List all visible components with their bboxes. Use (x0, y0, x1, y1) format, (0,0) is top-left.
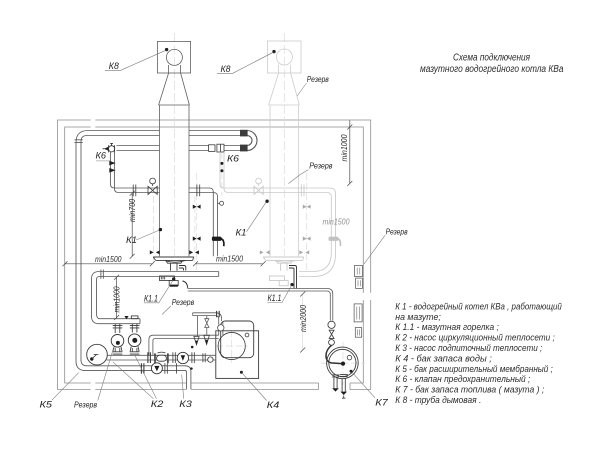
svg-text:К 1 - водогрейный котел КВа ,: К 1 - водогрейный котел КВа , работающий (395, 301, 562, 312)
svg-text:min1500: min1500 (95, 254, 122, 264)
svg-text:К 3 - насос подпиточный тепло: К 3 - насос подпиточный теплосети ; (395, 343, 542, 354)
svg-text:К5: К5 (40, 400, 54, 410)
svg-text:К 8 - труба дымовая .: К 8 - труба дымовая . (395, 395, 481, 406)
svg-text:Резерв: Резерв (386, 227, 408, 237)
svg-text:К6: К6 (96, 151, 107, 161)
svg-text:Резерв: Резерв (307, 74, 329, 84)
svg-text:К8: К8 (221, 64, 231, 74)
svg-text:Резерв: Резерв (172, 297, 195, 307)
svg-text:min700: min700 (127, 199, 137, 222)
svg-text:min1500: min1500 (216, 254, 243, 264)
svg-text:Резерв: Резерв (309, 160, 333, 170)
svg-text:min1000: min1000 (339, 134, 349, 161)
svg-text:К1.1: К1.1 (144, 293, 158, 303)
svg-text:К1.1: К1.1 (268, 293, 282, 303)
svg-text:Схема подключения: Схема подключения (453, 53, 531, 64)
svg-text:К2: К2 (151, 399, 164, 409)
svg-text:мазутного водогрейного котла К: мазутного водогрейного котла КВа (420, 64, 564, 75)
svg-text:К 7 - бак запаса топлива ( м: К 7 - бак запаса топлива ( мазута ) ; (395, 385, 544, 396)
svg-text:К 1.1 - мазутная горелка ;: К 1.1 - мазутная горелка ; (395, 322, 499, 333)
svg-text:К7: К7 (375, 397, 389, 407)
svg-text:min1500: min1500 (323, 217, 350, 227)
svg-text:min2000: min2000 (298, 305, 308, 332)
svg-text:К4: К4 (267, 400, 280, 410)
svg-text:К8: К8 (109, 61, 119, 71)
svg-text:К3: К3 (179, 399, 192, 409)
svg-text:Резерв: Резерв (74, 399, 97, 409)
svg-text:К1: К1 (126, 235, 137, 245)
svg-text:К6: К6 (227, 153, 239, 163)
svg-text:К 4 - бак запаса воды ;: К 4 - бак запаса воды ; (395, 353, 492, 364)
svg-text:К1: К1 (236, 228, 247, 238)
svg-text:К 5 - бак расширительный мемб: К 5 - бак расширительный мембранный ; (395, 364, 553, 375)
svg-text:К 6 - клапан предохранительны: К 6 - клапан предохранительный ; (395, 374, 530, 385)
svg-text:min1000: min1000 (112, 286, 122, 312)
svg-text:на мазуте;: на мазуте; (395, 312, 441, 323)
svg-text:К 2 - насос циркуляционный те: К 2 - насос циркуляционный теплосети ; (395, 333, 555, 344)
